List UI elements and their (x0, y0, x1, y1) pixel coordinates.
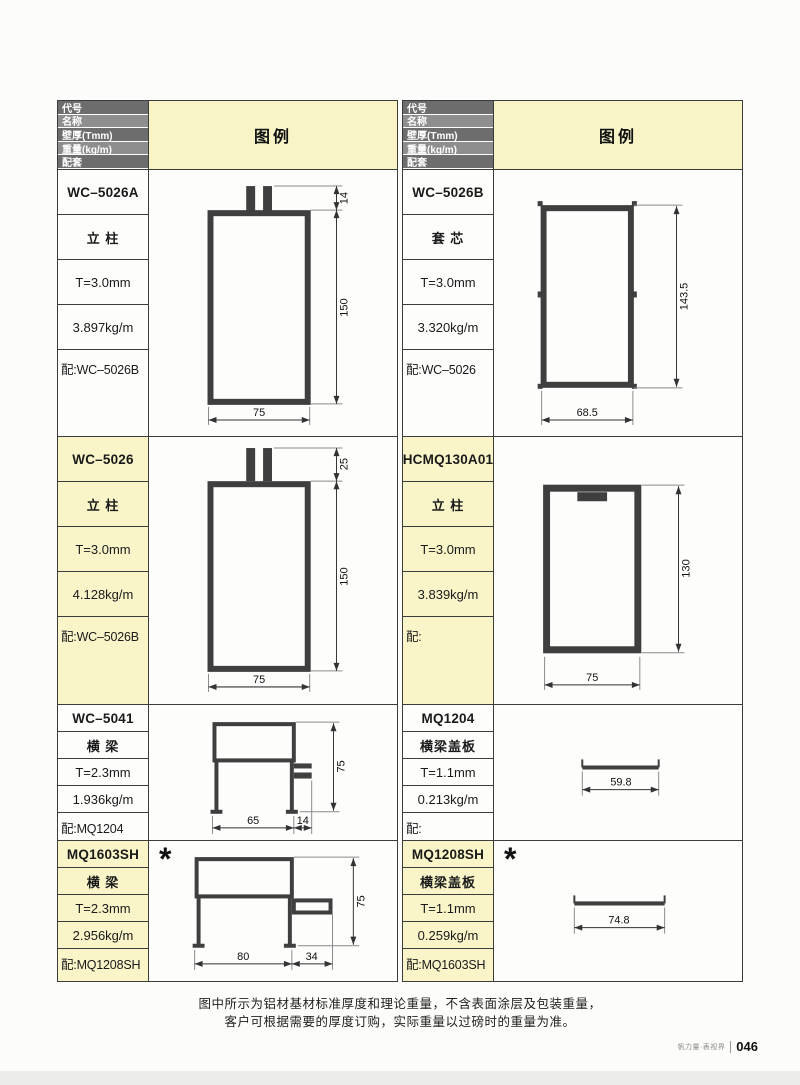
top-fin (246, 186, 255, 213)
profile-drawing: 143.5 68.5 (494, 170, 742, 436)
spec-header-table: 代号 名称 壁厚(Tmm) 重量(kg/m) 配套 图例 (57, 100, 398, 170)
profile-code: WC–5026B (403, 170, 493, 215)
wall-thickness: T=3.0mm (403, 260, 493, 305)
dimension-label: 68.5 (577, 407, 598, 419)
dimension-lines (209, 186, 337, 420)
profile-diagram: 14 150 75 (149, 170, 397, 436)
profile-outline (193, 859, 331, 946)
top-fin (263, 448, 272, 481)
extension-lines (545, 485, 685, 690)
header-row-weight: 重量(kg/m) (403, 142, 493, 155)
footer-divider (730, 1041, 731, 1053)
footnote-line-1: 图中所示为铝材基材标准厚度和理论重量，不含表面涂层及包装重量， (0, 993, 800, 1012)
profile-code: MQ1208SH (403, 841, 493, 868)
profile-code: HCMQ130A01 (403, 437, 493, 482)
dimension-label: 14 (338, 192, 350, 204)
legend-header: 图例 (494, 101, 742, 169)
unit-weight: 1.936kg/m (58, 786, 148, 813)
dimension-label: 143.5 (678, 283, 690, 311)
unit-weight: 2.956kg/m (58, 922, 148, 949)
profile-drawing: 14 150 75 (149, 170, 397, 436)
wall-thickness: T=2.3mm (58, 759, 148, 786)
profile-code: MQ1204 (403, 705, 493, 732)
wall-thickness: T=1.1mm (403, 759, 493, 786)
profile-outline (211, 724, 312, 812)
page-edge-strip (0, 1071, 800, 1085)
top-fin (263, 186, 272, 213)
profile-diagram: 25 150 75 (149, 437, 397, 704)
profile-code: WC–5026 (58, 437, 148, 482)
profile-name: 横 梁 (58, 868, 148, 895)
header-row-code: 代号 (58, 101, 148, 114)
profile-block-wc5026a: WC–5026A 立 柱 T=3.0mm 3.897kg/m 配:WC–5026… (57, 170, 398, 437)
profile-code: WC–5026A (58, 170, 148, 215)
header-row-match: 配套 (58, 155, 148, 168)
header-row-name: 名称 (403, 115, 493, 128)
matching-profile: 配:MQ1208SH (58, 949, 148, 981)
unit-weight: 0.213kg/m (403, 786, 493, 813)
header-row-weight: 重量(kg/m) (58, 142, 148, 155)
profile-outline (211, 213, 308, 402)
extension-lines (195, 857, 360, 970)
profile-outline (211, 484, 308, 669)
dimension-label: 14 (297, 815, 309, 827)
profile-drawing: 59.8 (494, 705, 742, 840)
unit-weight: 3.320kg/m (403, 305, 493, 350)
profile-name: 套 芯 (403, 215, 493, 260)
dimension-label: 65 (247, 815, 259, 827)
unit-weight: 0.259kg/m (403, 922, 493, 949)
profile-name: 立 柱 (403, 482, 493, 527)
extension-lines (209, 186, 343, 425)
asterisk-mark: * (159, 843, 171, 875)
dimension-label: 75 (355, 895, 367, 907)
corner-nubs (538, 201, 637, 389)
wall-thickness: T=1.1mm (403, 895, 493, 922)
profile-block-wc5041: WC–5041 横 梁 T=2.3mm 1.936kg/m 配:MQ1204 (57, 705, 398, 841)
dimension-label: 59.8 (610, 777, 631, 789)
profile-outline (544, 208, 631, 385)
profile-name: 横梁盖板 (403, 732, 493, 759)
profile-name: 横 梁 (58, 732, 148, 759)
dimension-label: 75 (335, 760, 347, 772)
dimension-label: 75 (253, 674, 265, 686)
page-footer: 帆力量·表视界 046 (677, 1039, 758, 1054)
profile-diagram: 59.8 (494, 705, 742, 840)
header-row-thickness: 壁厚(Tmm) (403, 128, 493, 141)
left-column: 代号 名称 壁厚(Tmm) 重量(kg/m) 配套 图例 WC–5026A 立 … (57, 100, 398, 982)
profile-outline (582, 759, 658, 767)
header-row-thickness: 壁厚(Tmm) (58, 128, 148, 141)
header-row-code: 代号 (403, 101, 493, 114)
profile-diagram: * (149, 841, 397, 981)
dimension-label: 150 (338, 567, 350, 585)
spec-header-labels: 代号 名称 壁厚(Tmm) 重量(kg/m) 配套 (58, 101, 149, 169)
asterisk-mark: * (504, 843, 516, 875)
wall-thickness: T=3.0mm (403, 527, 493, 572)
profile-diagram: 130 75 (494, 437, 742, 704)
unit-weight: 3.897kg/m (58, 305, 148, 350)
extension-lines (212, 722, 339, 834)
dimension-label: 150 (338, 298, 350, 316)
profile-outline (547, 488, 638, 650)
profile-name: 立 柱 (58, 215, 148, 260)
brand-text: 帆力量·表视界 (677, 1042, 725, 1052)
extension-lines (542, 205, 683, 425)
header-row-name: 名称 (58, 115, 148, 128)
dimension-label: 74.8 (608, 915, 629, 927)
right-column: 代号 名称 壁厚(Tmm) 重量(kg/m) 配套 图例 WC–5026B 套 … (402, 100, 743, 982)
matching-profile: 配:MQ1204 (58, 813, 148, 840)
wall-thickness: T=3.0mm (58, 527, 148, 572)
dimension-label: 75 (253, 407, 265, 419)
dimension-label: 75 (586, 672, 598, 684)
page-number: 046 (736, 1039, 758, 1054)
dimension-label: 25 (338, 458, 350, 470)
profile-block-wc5026b: WC–5026B 套 芯 T=3.0mm 3.320kg/m 配:WC–5026 (402, 170, 743, 437)
matching-profile: 配:WC–5026B (58, 350, 148, 436)
matching-profile: 配:WC–5026 (403, 350, 493, 436)
dimension-label: 34 (306, 951, 318, 963)
profile-name: 立 柱 (58, 482, 148, 527)
footnote-line-2: 客户可根据需要的厚度订购，实际重量以过磅时的重量为准。 (0, 1011, 800, 1030)
inner-notch (577, 492, 607, 501)
profile-block-mq1204: MQ1204 横梁盖板 T=1.1mm 0.213kg/m 配: 59.8 (402, 705, 743, 841)
profile-drawing: 25 150 75 (149, 437, 397, 704)
top-fin (246, 448, 255, 481)
profile-block-mq1208sh: MQ1208SH 横梁盖板 T=1.1mm 0.259kg/m 配:MQ1603… (402, 841, 743, 982)
wall-thickness: T=2.3mm (58, 895, 148, 922)
profile-diagram: * 74.8 (494, 841, 742, 981)
profile-drawing: 74.8 (494, 841, 742, 981)
unit-weight: 4.128kg/m (58, 572, 148, 617)
spec-header-labels: 代号 名称 壁厚(Tmm) 重量(kg/m) 配套 (403, 101, 494, 169)
profile-diagram: 75 65 14 (149, 705, 397, 840)
matching-profile: 配: (403, 813, 493, 840)
profile-drawing: 75 80 34 (149, 841, 397, 981)
profile-drawing: 130 75 (494, 437, 742, 704)
matching-profile: 配:WC–5026B (58, 617, 148, 704)
profile-block-mq1603sh: MQ1603SH 横 梁 T=2.3mm 2.956kg/m 配:MQ1208S… (57, 841, 398, 982)
dimension-label: 130 (680, 559, 692, 577)
matching-profile: 配:MQ1603SH (403, 949, 493, 981)
legend-header: 图例 (149, 101, 397, 169)
spec-header-table: 代号 名称 壁厚(Tmm) 重量(kg/m) 配套 图例 (402, 100, 743, 170)
dimension-lines (545, 486, 679, 685)
unit-weight: 3.839kg/m (403, 572, 493, 617)
header-row-match: 配套 (403, 155, 493, 168)
wall-thickness: T=3.0mm (58, 260, 148, 305)
profile-block-wc5026: WC–5026 立 柱 T=3.0mm 4.128kg/m 配:WC–5026B (57, 437, 398, 705)
profile-code: MQ1603SH (58, 841, 148, 868)
matching-profile: 配: (403, 617, 493, 704)
profile-drawing: 75 65 14 (149, 705, 397, 840)
profile-name: 横梁盖板 (403, 868, 493, 895)
profile-code: WC–5041 (58, 705, 148, 732)
dimension-label: 80 (237, 951, 249, 963)
profile-diagram: 143.5 68.5 (494, 170, 742, 436)
profile-block-hcmq130a01: HCMQ130A01 立 柱 T=3.0mm 3.839kg/m 配: (402, 437, 743, 705)
profile-outline (574, 895, 664, 903)
